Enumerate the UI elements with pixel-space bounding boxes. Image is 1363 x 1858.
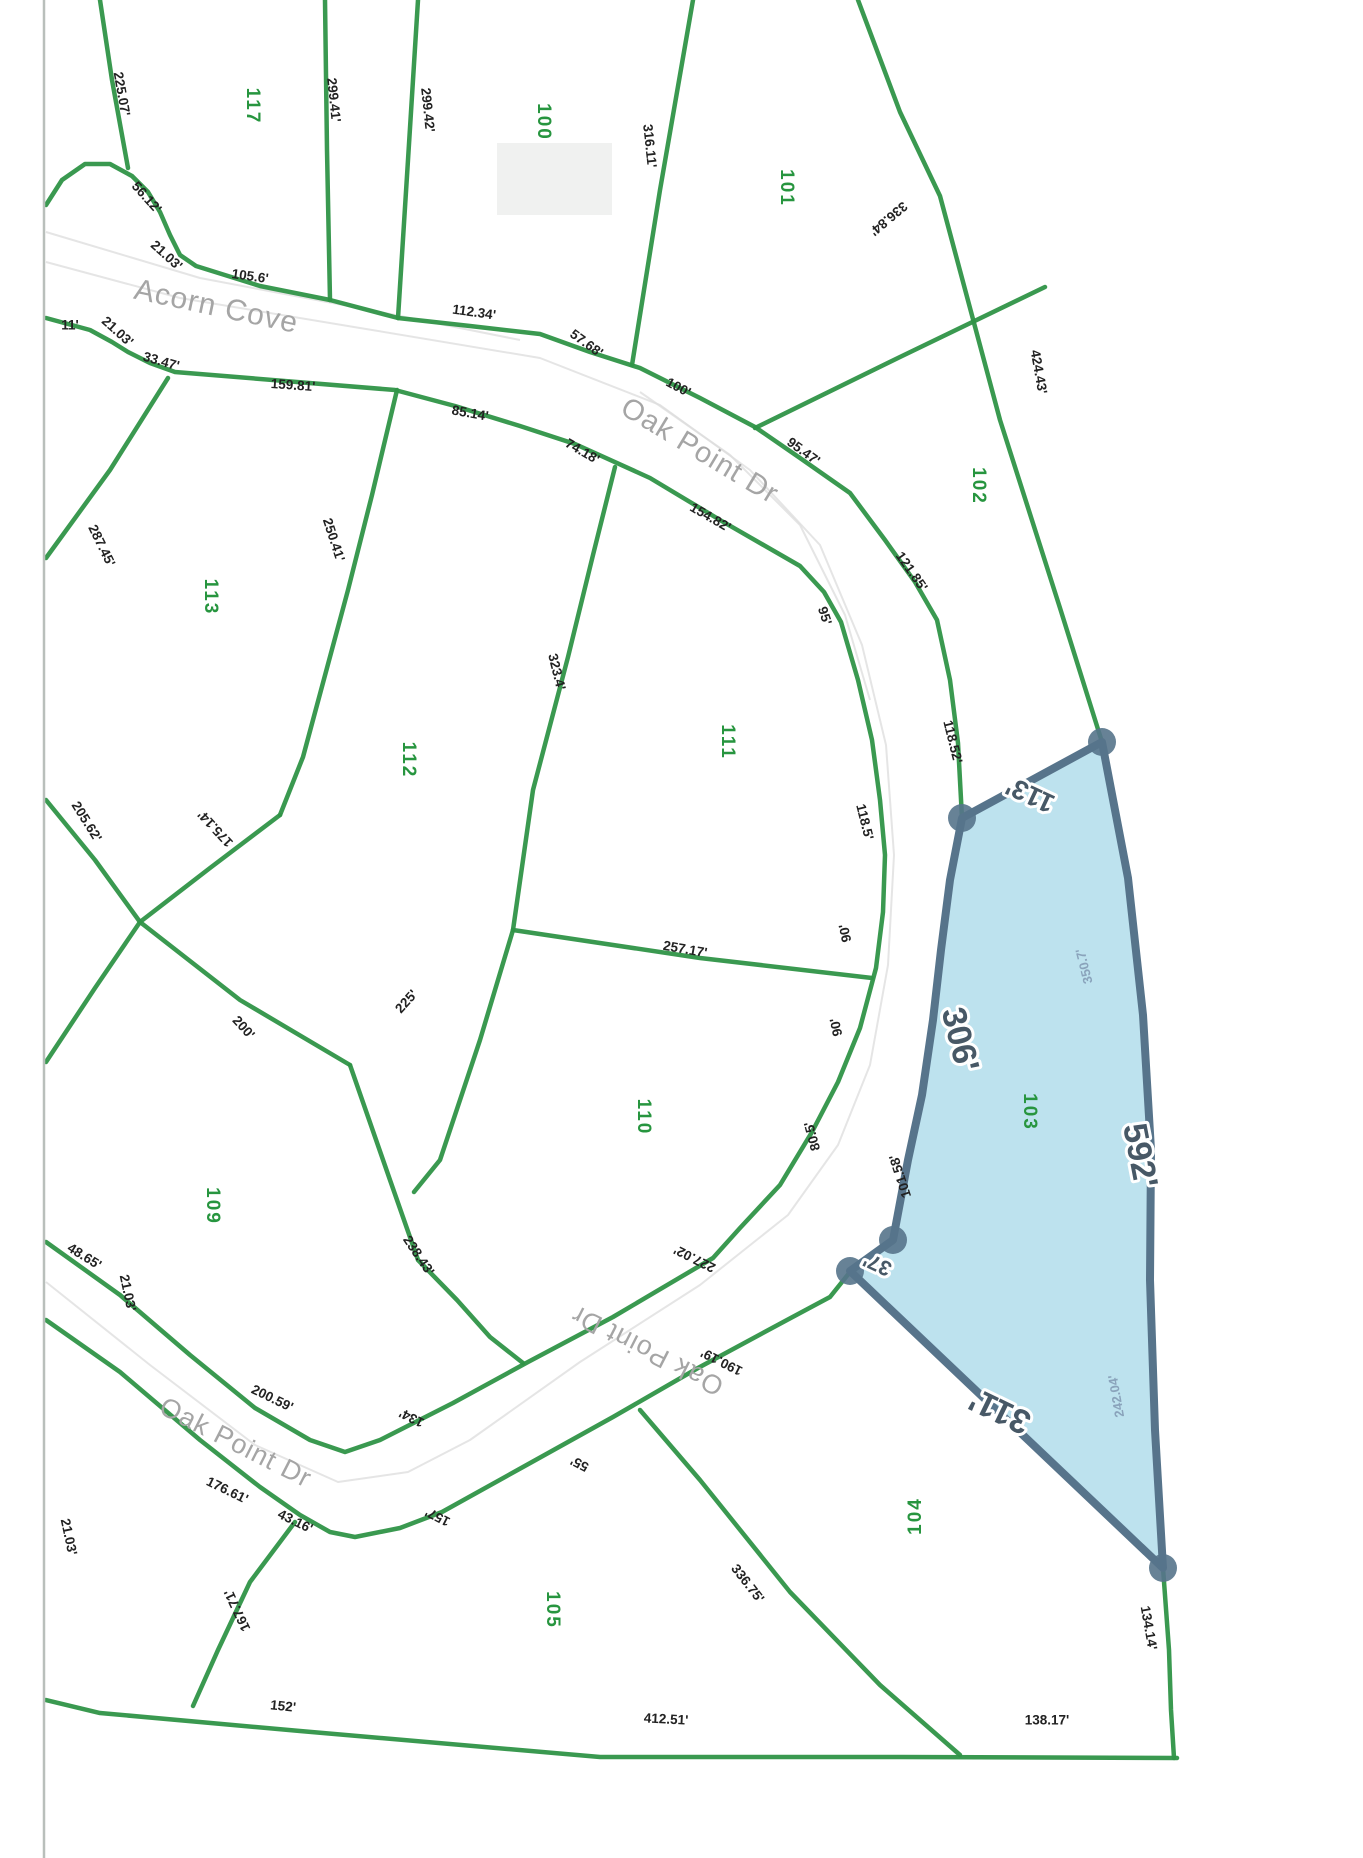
scan-artifact bbox=[497, 143, 612, 215]
lot-number-117[interactable]: 117 bbox=[242, 88, 263, 125]
parcel-vertex-dot bbox=[948, 804, 976, 832]
lot-number-103[interactable]: 103 bbox=[1019, 1093, 1040, 1131]
dimension-label: 11' bbox=[61, 318, 78, 333]
lot-number-112[interactable]: 112 bbox=[398, 742, 419, 779]
lot-number-104[interactable]: 104 bbox=[905, 1497, 926, 1535]
parcel-vertex-dot bbox=[836, 1257, 864, 1285]
lot-number-110[interactable]: 110 bbox=[633, 1099, 654, 1136]
lot-number-102[interactable]: 102 bbox=[968, 467, 989, 505]
plat-map-canvas[interactable]: Acorn CoveOak Point DrOak Point DrOak Po… bbox=[0, 0, 1363, 1858]
lot-number-109[interactable]: 109 bbox=[202, 1187, 223, 1225]
dimension-label: 138.17' bbox=[1025, 1713, 1070, 1728]
lot-number-113[interactable]: 113 bbox=[200, 579, 221, 616]
lot-number-111[interactable]: 111 bbox=[717, 724, 738, 760]
dimension-label: 412.51' bbox=[643, 1710, 688, 1727]
parcel-vertex-dot bbox=[879, 1226, 907, 1254]
plat-map-page: Acorn CoveOak Point DrOak Point DrOak Po… bbox=[0, 0, 1363, 1858]
parcel-vertex-dot bbox=[1149, 1554, 1177, 1582]
lot-number-105[interactable]: 105 bbox=[542, 1591, 563, 1629]
parcel-vertex-dot bbox=[1088, 728, 1116, 756]
dimension-label: 159.81' bbox=[270, 376, 315, 394]
dimension-label: 152' bbox=[270, 1697, 297, 1715]
lot-number-100[interactable]: 100 bbox=[533, 103, 554, 141]
lot-number-101[interactable]: 101 bbox=[776, 169, 797, 207]
